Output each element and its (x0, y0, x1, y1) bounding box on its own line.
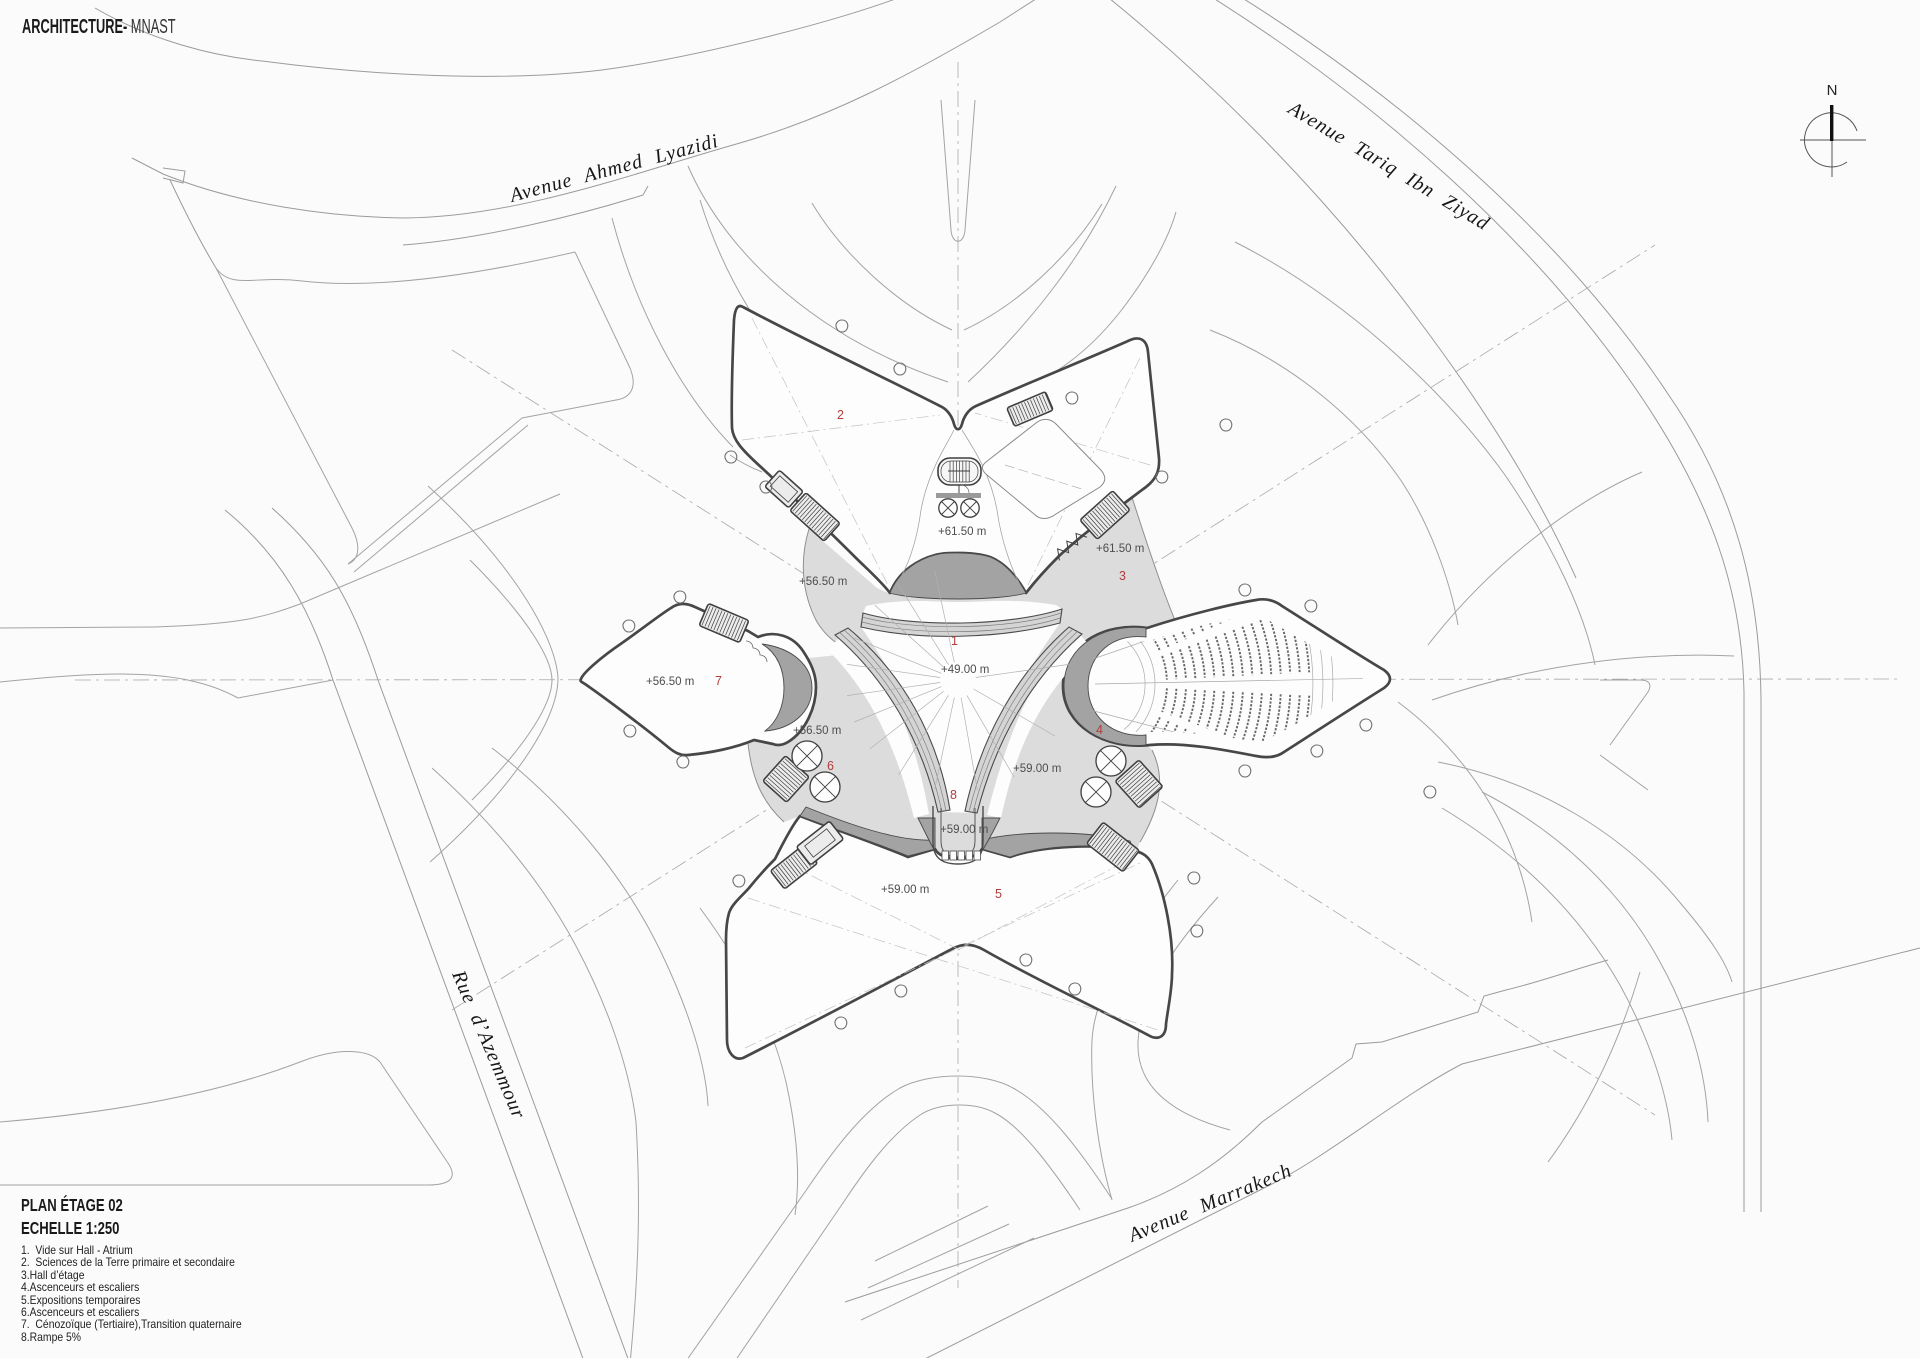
svg-text:Avenue Marrakech: Avenue Marrakech (1124, 1159, 1296, 1247)
svg-text:+56.50 m: +56.50 m (646, 676, 694, 688)
svg-text:4: 4 (1096, 723, 1103, 737)
svg-text:5: 5 (995, 887, 1002, 901)
svg-text:+61.50 m: +61.50 m (938, 526, 986, 538)
svg-text:+61.50 m: +61.50 m (1096, 543, 1144, 555)
svg-text:Rue d’Azemmour: Rue d’Azemmour (447, 966, 530, 1122)
svg-text:+59.00 m: +59.00 m (881, 884, 929, 896)
svg-text:3: 3 (1119, 569, 1126, 583)
svg-text:+56.50 m: +56.50 m (799, 576, 847, 588)
svg-text:+59.00 m: +59.00 m (940, 824, 988, 836)
svg-text:6: 6 (827, 759, 834, 773)
svg-text:N: N (1827, 82, 1838, 99)
svg-text:+49.00 m: +49.00 m (941, 664, 989, 676)
svg-text:2: 2 (837, 408, 844, 422)
svg-text:+56.50 m: +56.50 m (793, 725, 841, 737)
svg-text:8: 8 (950, 788, 957, 802)
svg-text:1: 1 (951, 634, 958, 648)
svg-text:+59.00 m: +59.00 m (1013, 763, 1061, 775)
svg-text:Avenue Tariq Ibn Ziyad: Avenue Tariq Ibn Ziyad (1283, 96, 1494, 235)
svg-text:7: 7 (715, 674, 722, 688)
